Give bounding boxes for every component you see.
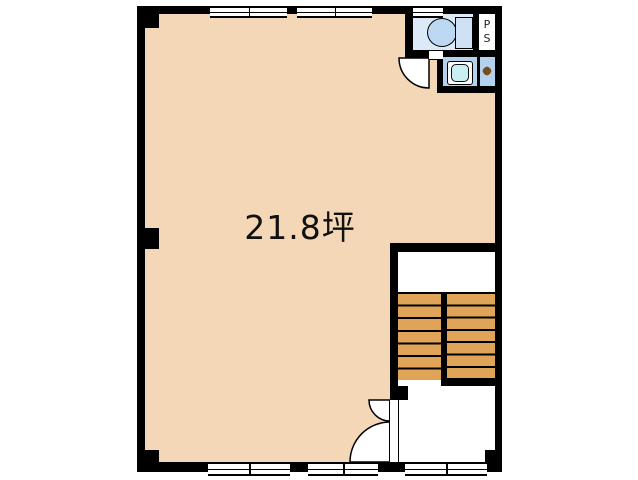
under-stair-wall [441,378,495,386]
window-toilet [413,6,443,18]
wc-doorway [429,50,443,60]
toilet-bottom-wall [405,50,429,58]
stair-divider-wall [441,292,447,386]
floor-plan: P S 21.8坪 [0,0,638,480]
washroom-top-wall [443,50,495,57]
sink-icon [447,61,473,85]
washroom-divider [477,57,480,86]
column-bottom-left [137,450,159,472]
window-top-2 [297,6,372,18]
window-top-1 [210,6,287,18]
window-bottom-1 [208,462,290,476]
pipe-space: P S [479,14,495,50]
entry-doorway [389,400,399,462]
washroom-bottom-wall [437,86,495,93]
column-mid-left [137,228,159,249]
stair-left-wall [390,243,398,400]
stair-top-wall [390,243,495,252]
ps-label-p: P [484,18,491,32]
toilet-icon [427,18,457,47]
outer-wall-right [495,6,502,472]
ps-label-s: S [484,32,491,46]
area-label: 21.8坪 [205,201,395,249]
sink-basin [451,64,469,82]
stair-flight-left [398,292,441,380]
entry-wall-stub [390,386,408,400]
stair-flight-right [447,292,495,378]
column-bottom-right [485,450,502,472]
window-bottom-2 [308,462,378,476]
column-top-left [137,6,159,28]
window-bottom-3 [405,462,487,476]
toilet-tank [455,17,473,49]
